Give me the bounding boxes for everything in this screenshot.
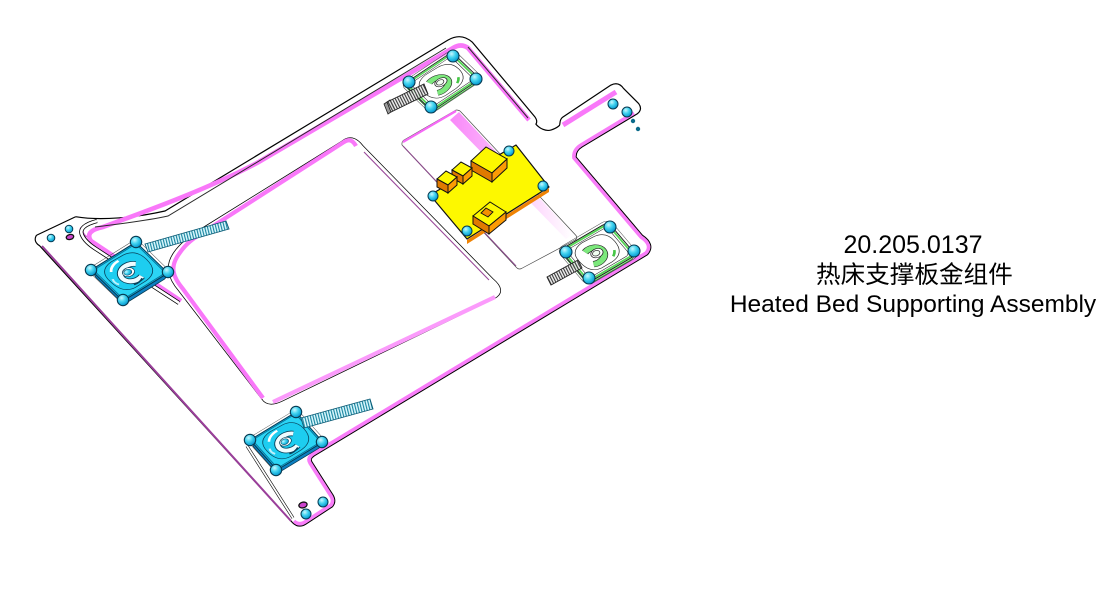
svg-text:Heated Bed Supporting Assembly: Heated Bed Supporting Assembly bbox=[730, 291, 1097, 318]
svg-text:20.205.0137: 20.205.0137 bbox=[843, 231, 982, 259]
